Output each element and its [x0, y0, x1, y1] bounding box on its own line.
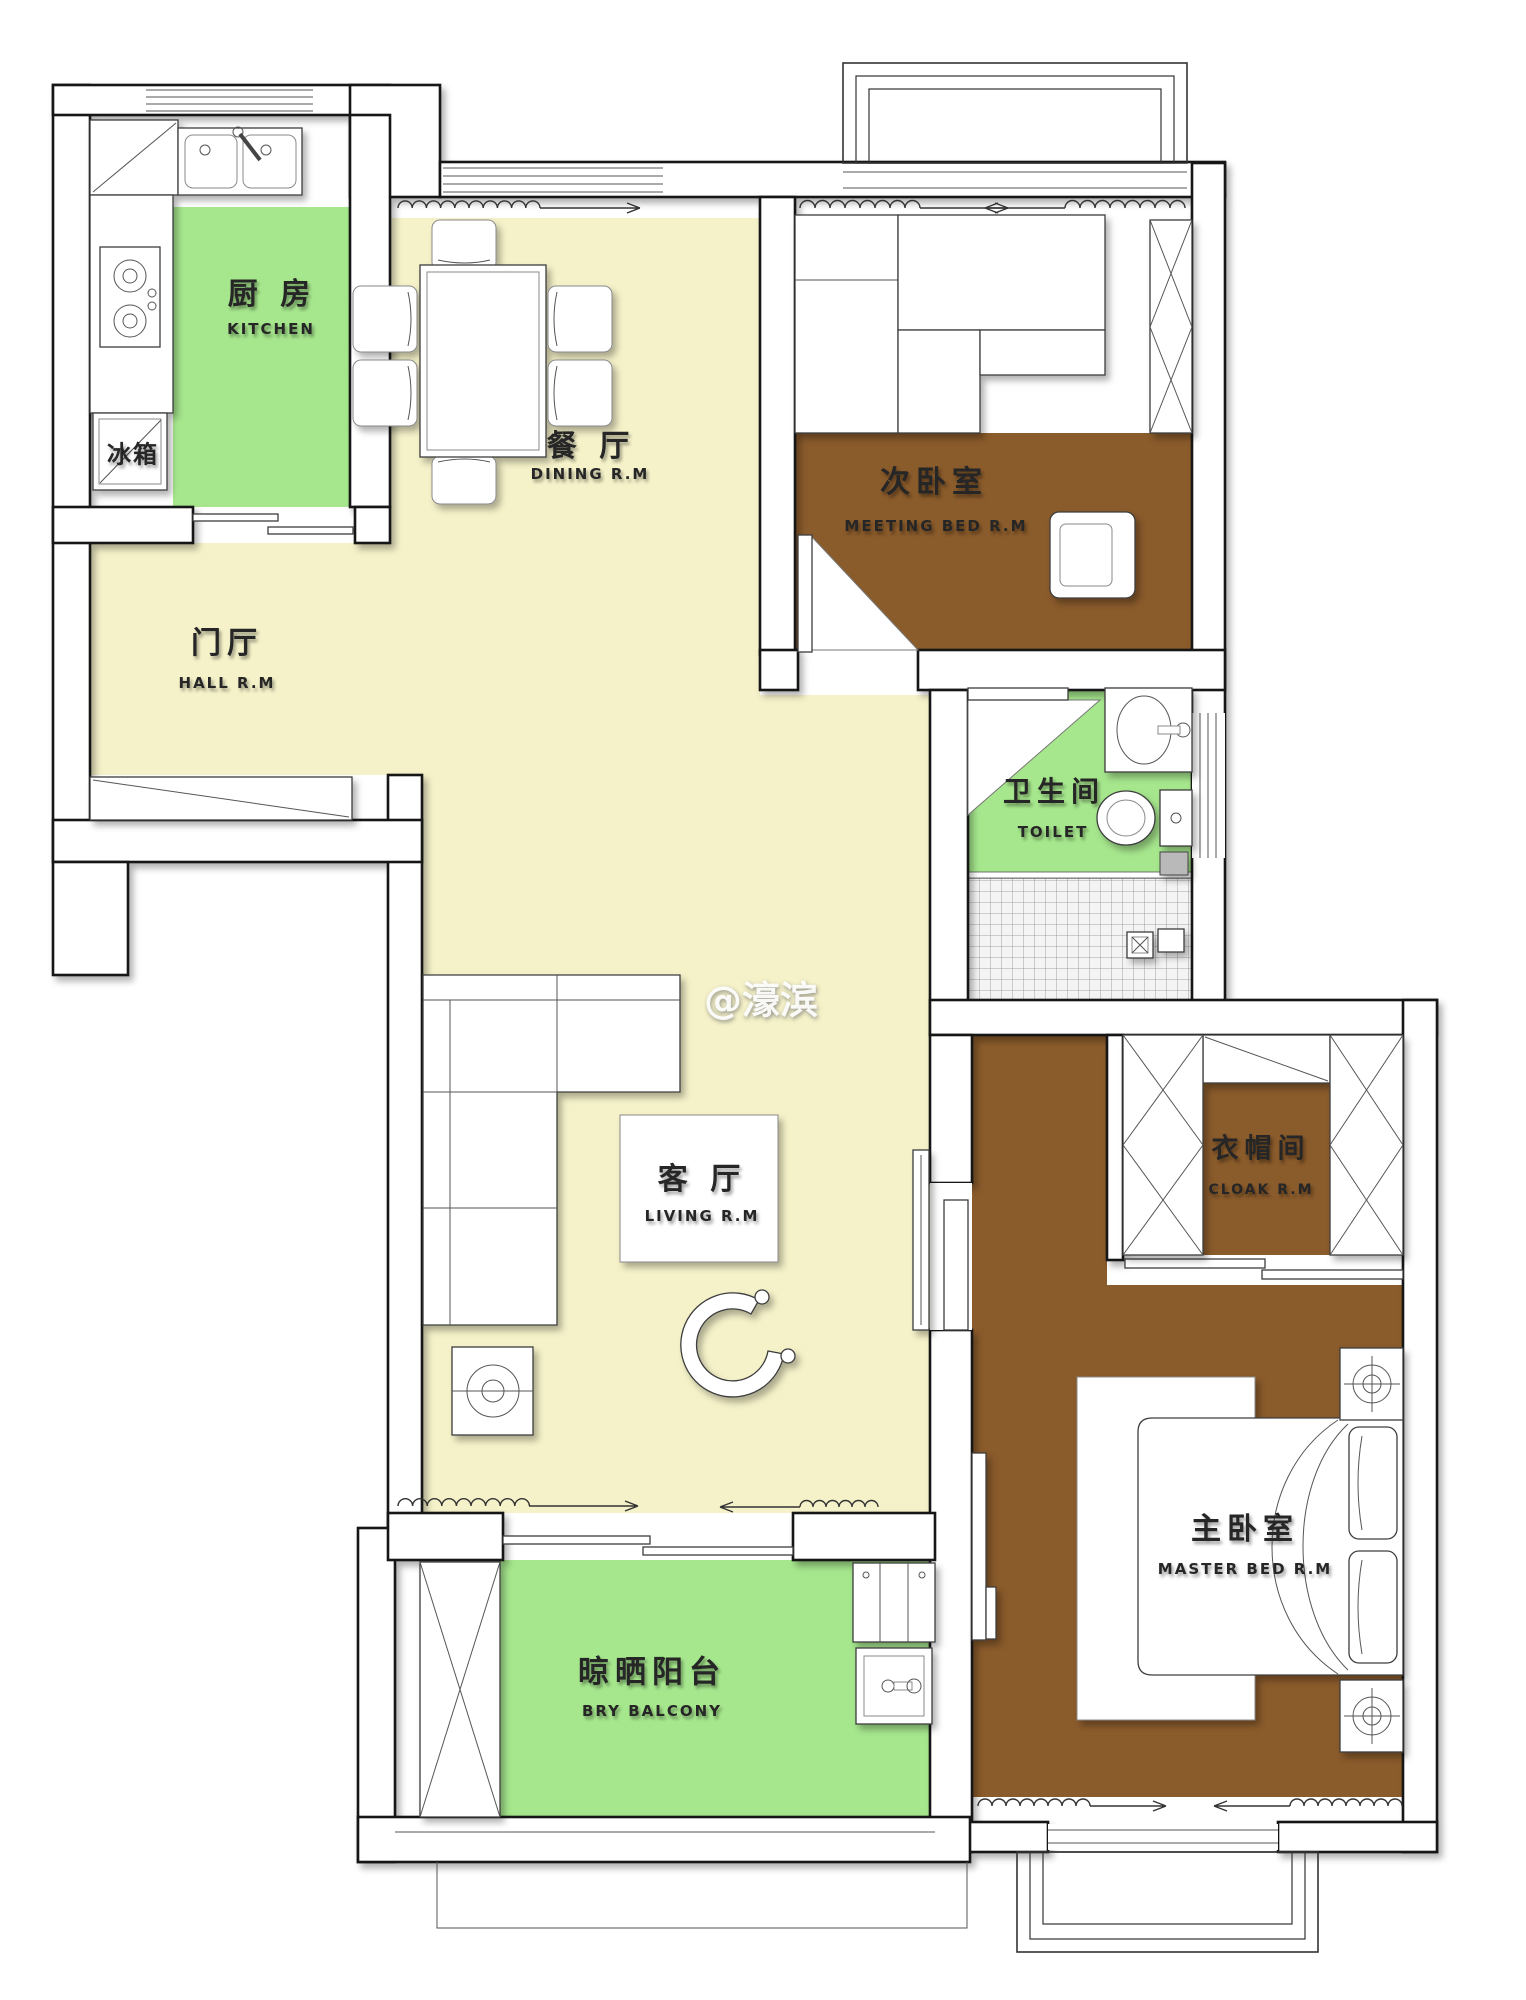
gas-stove-icon	[100, 247, 160, 347]
kitchen-corner-cabinet	[90, 120, 178, 195]
secondary-bedroom-label: 次卧室	[880, 457, 988, 501]
cloak-label: 衣帽间	[1212, 1127, 1311, 1166]
cloak-wardrobe-right	[1330, 1035, 1403, 1255]
cloak-label-en: CLOAK R.M	[1208, 1182, 1313, 1198]
kitchen-sliding-door-icon	[193, 514, 353, 534]
hall-label-en: HALL R.M	[179, 674, 276, 692]
toilet-label: 卫生间	[1003, 770, 1105, 810]
curtain-master-left	[978, 1799, 1166, 1811]
balcony-closet	[420, 1562, 500, 1817]
balcony-label-en: BRY BALCONY	[582, 1702, 722, 1720]
secondary-bedroom-wardrobe	[1150, 220, 1192, 433]
kitchen-label-en: KITCHEN	[227, 320, 315, 338]
curtain-master-right	[1214, 1799, 1402, 1811]
kitchen-window-icon	[146, 88, 313, 113]
nightstand-bottom-icon	[1340, 1680, 1403, 1752]
living-label: 客 厅	[658, 1154, 746, 1198]
master-bedroom-label-en: MASTER BED R.M	[1158, 1560, 1332, 1578]
toilet-window-icon	[1192, 713, 1225, 858]
curtain-bed2-right	[985, 201, 1185, 213]
cloak-cabinet	[1203, 1035, 1330, 1083]
dining-window-icon	[443, 164, 663, 195]
secondary-bedroom-chair-icon	[1050, 512, 1135, 598]
bay-window-bottom-icon	[1017, 1824, 1318, 1952]
curtain-bed2-left	[800, 201, 1008, 213]
nightstand-top-icon	[1340, 1348, 1403, 1420]
balcony-sliding-door-icon	[503, 1536, 793, 1555]
hall-label: 门厅	[191, 618, 263, 662]
balcony-cabinet	[853, 1563, 935, 1642]
side-table-icon	[452, 1347, 533, 1435]
watermark: @濠滨	[704, 970, 818, 1025]
master-bedroom-label: 主卧室	[1191, 1504, 1299, 1548]
kitchen-label: 厨 房	[228, 269, 316, 313]
bay-window-top-icon	[843, 63, 1187, 195]
living-tv-icon	[913, 1150, 929, 1330]
dining-label-en: DINING R.M	[531, 465, 650, 483]
cloak-wardrobe-left	[1123, 1035, 1203, 1255]
master-corridor-floor	[972, 1035, 1107, 1285]
toilet-label-en: TOILET	[1018, 823, 1089, 841]
floor-plan: 厨 房 KITCHEN 餐 厅 DINING R.M 门厅 HALL R.M 次…	[0, 0, 1526, 2000]
secondary-bedroom-cabinets	[795, 215, 1105, 433]
dining-label: 餐 厅	[547, 421, 635, 465]
shoe-cabinet	[90, 777, 352, 820]
toilet-shelf	[1160, 852, 1188, 875]
living-label-en: LIVING R.M	[645, 1207, 760, 1225]
washbasin-icon	[1105, 688, 1192, 772]
secondary-bedroom-label-en: MEETING BED R.M	[844, 517, 1027, 535]
kitchen-sink-icon	[178, 127, 302, 195]
washing-machine-icon	[856, 1648, 932, 1724]
master-bedroom-door-icon	[930, 1183, 972, 1330]
balcony-label: 晾晒阳台	[578, 1647, 726, 1692]
cloak-sliding-door-icon	[1125, 1259, 1403, 1279]
fridge-label: 冰箱	[107, 435, 159, 470]
curtain-dining	[398, 201, 640, 213]
toilet-wc-icon	[1097, 790, 1192, 846]
cloak-floor	[1203, 1083, 1330, 1255]
